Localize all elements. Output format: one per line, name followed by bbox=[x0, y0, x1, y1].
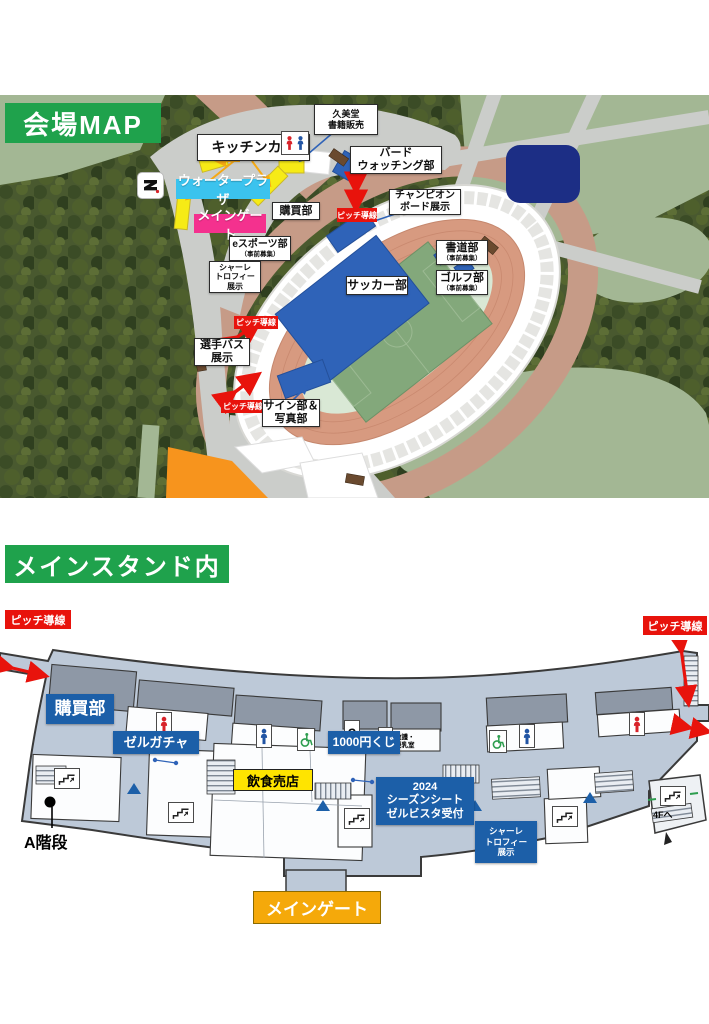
food-shop-label: 飲食売店 bbox=[233, 769, 313, 791]
cursor-arrow bbox=[664, 832, 672, 845]
wheelchair-icon-right bbox=[489, 730, 507, 753]
venue-map-title: 会場MAP bbox=[5, 103, 161, 143]
mens-toilet-icon-right bbox=[519, 724, 535, 748]
gate-marker-triangle-1 bbox=[127, 783, 141, 794]
kumido-book-label: 久美堂書籍販売 bbox=[314, 104, 378, 135]
esports-club-label: eスポーツ部 （事前募集） bbox=[229, 236, 291, 261]
stairs-icon-4f bbox=[660, 786, 686, 806]
calligraphy-club-label: 書道部 （事前募集） bbox=[436, 240, 488, 265]
stairs-icon-a bbox=[54, 768, 80, 789]
pitch-route-label-stand-left: ピッチ導線 bbox=[5, 610, 71, 629]
gate-marker-triangle-4 bbox=[583, 792, 597, 803]
season-seat-label: 2024 シーズンシート ゼルビスタ受付 bbox=[376, 777, 474, 825]
zelvia-logo bbox=[137, 172, 164, 199]
zelgacha-label: ゼルガチャ bbox=[113, 731, 199, 754]
main-gate-label-stand: メインゲート bbox=[253, 891, 381, 924]
stairs-icon-b bbox=[168, 802, 194, 823]
kobai-label-map: 購買部 bbox=[272, 202, 320, 220]
kobai-label-stand: 購買部 bbox=[46, 694, 114, 724]
event-map-page: 会場MAP キッチンカー 久美堂書籍販売 ウォータープラザ メインゲート 購買部… bbox=[0, 0, 709, 1024]
bird-watching-label: バードウォッチング部 bbox=[350, 146, 442, 174]
pool-building bbox=[506, 145, 580, 203]
pitch-route-label-map-1: ピッチ導線 bbox=[337, 208, 377, 222]
schale-trophy-label-stand: シャーレ トロフィー 展示 bbox=[475, 821, 537, 863]
to-4f-label: 4Fへ bbox=[653, 808, 673, 821]
pitch-route-label-map-2: ピッチ導線 bbox=[234, 316, 278, 329]
main-stand-title: メインスタンド内 bbox=[5, 545, 229, 583]
pitch-route-label-map-3: ピッチ導線 bbox=[221, 400, 265, 413]
player-bus-label: 選手バス展示 bbox=[194, 338, 250, 366]
restroom-icon bbox=[281, 131, 309, 155]
water-plaza-label: ウォータープラザ bbox=[176, 179, 270, 199]
pitch-route-label-stand-right: ピッチ導線 bbox=[643, 616, 707, 635]
mens-toilet-icon-left bbox=[256, 724, 272, 748]
a-stairs-label: A階段 bbox=[24, 829, 68, 853]
main-gate-label-map: メインゲート bbox=[194, 214, 266, 233]
sign-photo-label: サイン部＆写真部 bbox=[262, 399, 320, 427]
stairs-icon-c bbox=[344, 808, 370, 829]
wheelchair-icon-left bbox=[297, 728, 315, 751]
champion-board-label: チャンピオンボード展示 bbox=[389, 189, 461, 215]
stairs-icon-d bbox=[552, 806, 578, 827]
soccer-club-label: サッカー部 bbox=[346, 276, 408, 295]
gate-marker-triangle-2 bbox=[316, 800, 330, 811]
lottery-label: 1000円くじ bbox=[328, 731, 400, 754]
zelvia-logo-mark bbox=[141, 176, 160, 195]
womens-toilet-icon-right bbox=[629, 712, 645, 736]
schale-trophy-label-map: シャーレトロフィー展示 bbox=[209, 261, 261, 293]
golf-club-label: ゴルフ部 （事前募集） bbox=[436, 270, 488, 295]
